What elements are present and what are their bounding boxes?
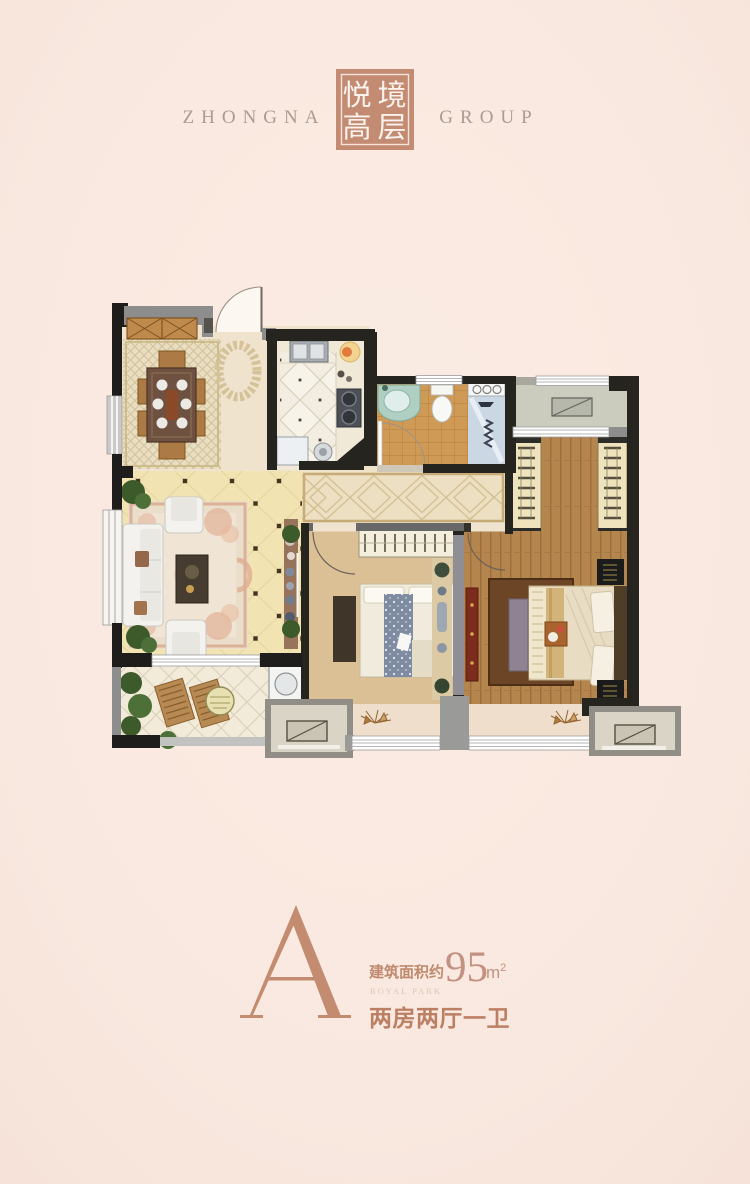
svg-text:层: 层	[377, 112, 406, 144]
svg-text:GROUP: GROUP	[439, 107, 538, 128]
svg-text:悦: 悦	[342, 79, 371, 112]
svg-text:两房两厅一卫: 两房两厅一卫	[369, 1005, 510, 1031]
svg-text:ROYAL PARK: ROYAL PARK	[370, 986, 442, 996]
svg-text:建筑面积约: 建筑面积约	[369, 963, 444, 981]
svg-text:ZHONGNA: ZHONGNA	[183, 107, 326, 128]
svg-text:高: 高	[342, 111, 371, 144]
svg-text:境: 境	[377, 79, 406, 112]
svg-text:95: 95	[445, 944, 488, 991]
